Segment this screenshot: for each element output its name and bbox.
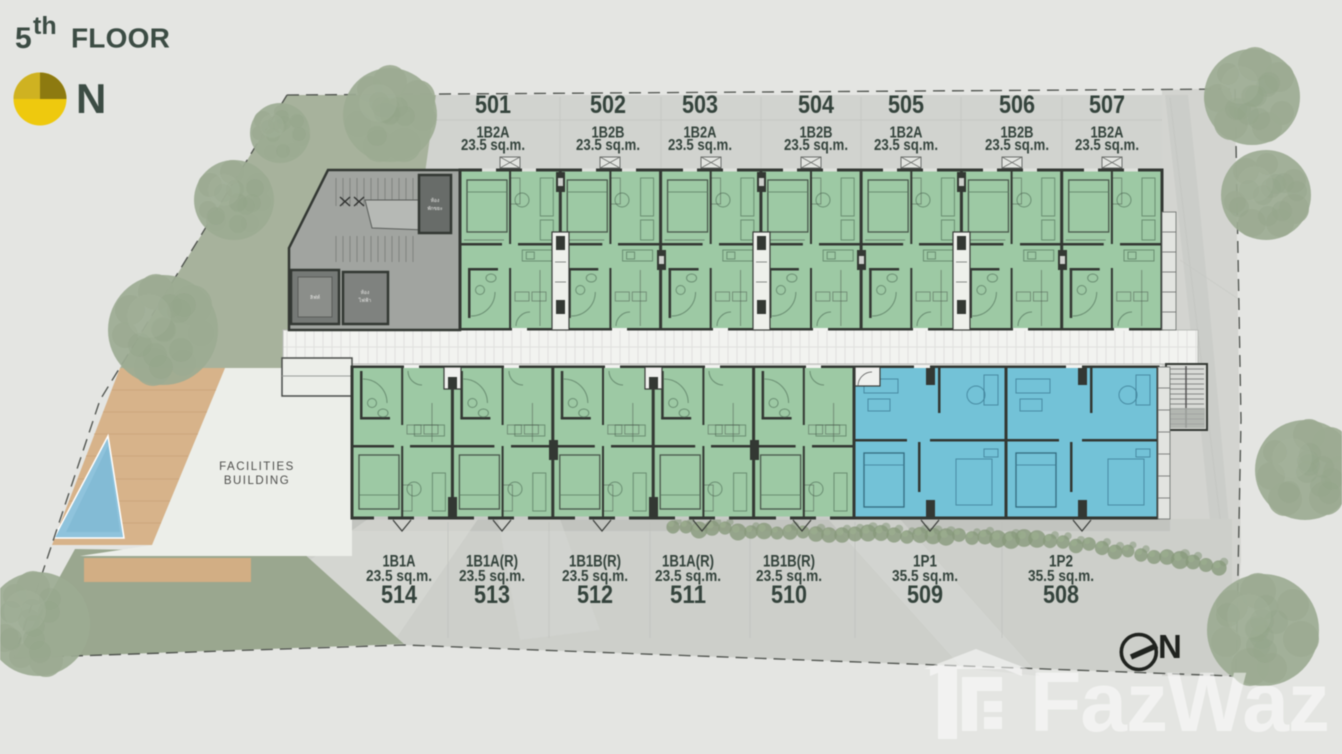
svg-text:503: 503 [682,91,718,119]
svg-text:ลิฟท์: ลิฟท์ [310,294,320,301]
svg-text:505: 505 [888,91,924,119]
svg-text:509: 509 [907,581,943,609]
svg-text:23.5 sq.m.: 23.5 sq.m. [784,137,848,154]
svg-text:FLOOR: FLOOR [71,23,170,54]
svg-text:23.5 sq.m.: 23.5 sq.m. [1075,137,1139,154]
svg-text:BUILDING: BUILDING [224,475,290,487]
svg-text:510: 510 [771,581,807,609]
svg-text:FazWaz: FazWaz [1030,655,1329,749]
svg-text:23.5 sq.m.: 23.5 sq.m. [985,137,1049,154]
svg-text:504: 504 [798,91,834,119]
svg-text:508: 508 [1043,581,1079,609]
svg-text:ไฟฟ้า: ไฟฟ้า [358,297,372,304]
svg-text:513: 513 [474,581,510,609]
svg-text:FACILITIES: FACILITIES [219,461,295,473]
svg-text:501: 501 [475,91,511,119]
svg-text:23.5 sq.m.: 23.5 sq.m. [576,137,640,154]
svg-text:ห้อง: ห้อง [431,197,440,204]
svg-text:506: 506 [999,91,1035,119]
svg-text:th: th [33,12,57,40]
svg-text:พักขยะ: พักขยะ [427,206,443,212]
svg-text:502: 502 [590,91,626,119]
svg-text:5: 5 [15,22,32,55]
svg-text:507: 507 [1089,91,1125,119]
svg-text:23.5 sq.m.: 23.5 sq.m. [461,137,525,154]
svg-text:23.5 sq.m.: 23.5 sq.m. [874,137,938,154]
svg-text:512: 512 [577,581,613,609]
svg-text:514: 514 [381,581,417,609]
svg-text:N: N [76,75,106,122]
svg-text:511: 511 [670,581,706,609]
svg-text:23.5 sq.m.: 23.5 sq.m. [668,137,732,154]
svg-text:ห้อง: ห้อง [361,289,370,296]
